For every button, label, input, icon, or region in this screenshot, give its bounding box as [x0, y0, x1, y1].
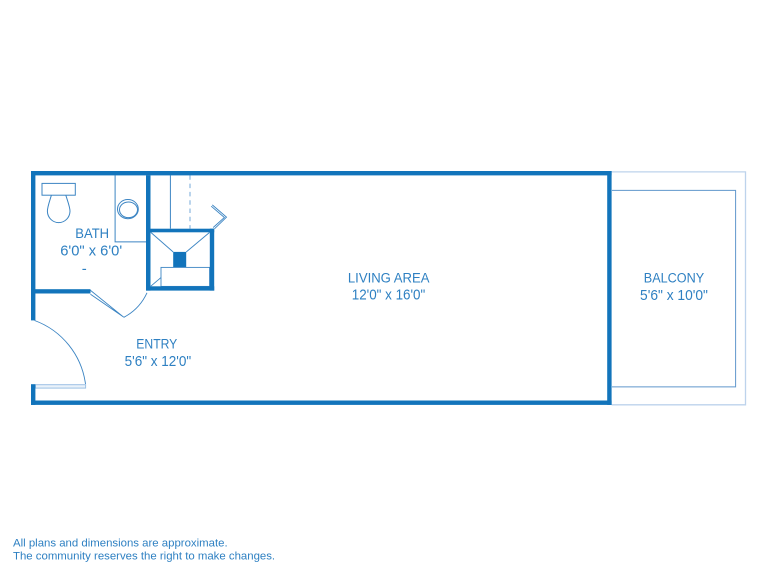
svg-text:12'0" x 16'0": 12'0" x 16'0"	[352, 286, 426, 303]
svg-text:5'6" x 12'0": 5'6" x 12'0"	[125, 353, 192, 370]
svg-text:LIVING AREA: LIVING AREA	[348, 270, 430, 286]
svg-text:6'0" x 6'0': 6'0" x 6'0'	[60, 242, 122, 259]
svg-text:5'6" x 10'0": 5'6" x 10'0"	[640, 287, 708, 304]
svg-text:ENTRY: ENTRY	[136, 336, 177, 352]
svg-text:BATH: BATH	[75, 226, 109, 242]
svg-text:BALCONY: BALCONY	[644, 271, 705, 287]
svg-text:The community reserves the rig: The community reserves the right to make…	[13, 550, 275, 562]
svg-text:-: -	[82, 261, 87, 278]
svg-text:All plans and dimensions are a: All plans and dimensions are approximate…	[13, 537, 228, 549]
